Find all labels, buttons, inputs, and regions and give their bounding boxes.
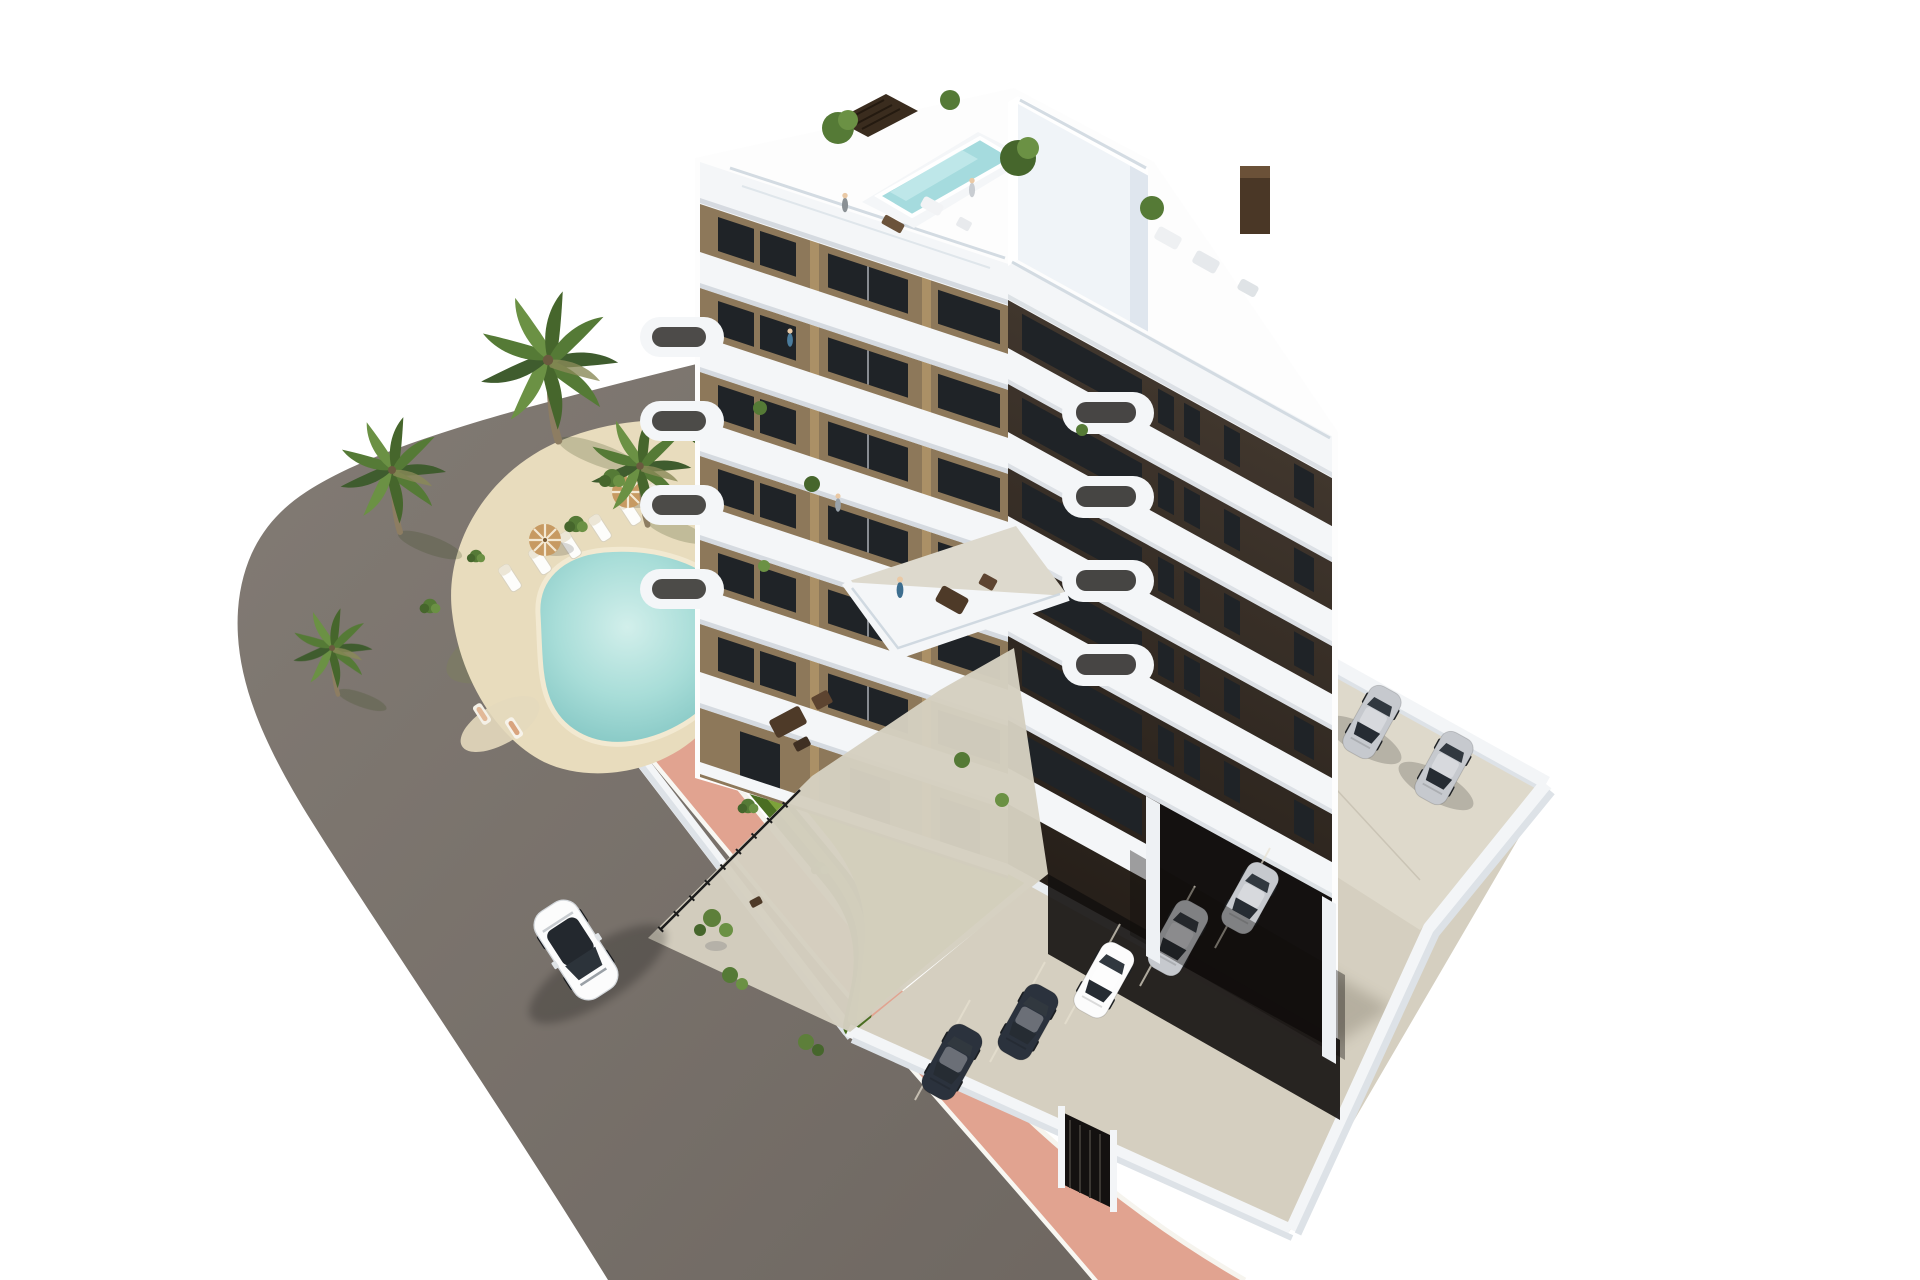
person-rooftop (842, 193, 848, 212)
person-rooftop (969, 178, 975, 197)
rendering-canvas (0, 0, 1920, 1280)
rooftop-chimney (1240, 172, 1270, 234)
architectural-rendering: Aerial 3D rendering of a modern 7-storey… (0, 0, 1920, 1280)
person-balcony (835, 494, 841, 512)
person-balcony (787, 329, 793, 347)
